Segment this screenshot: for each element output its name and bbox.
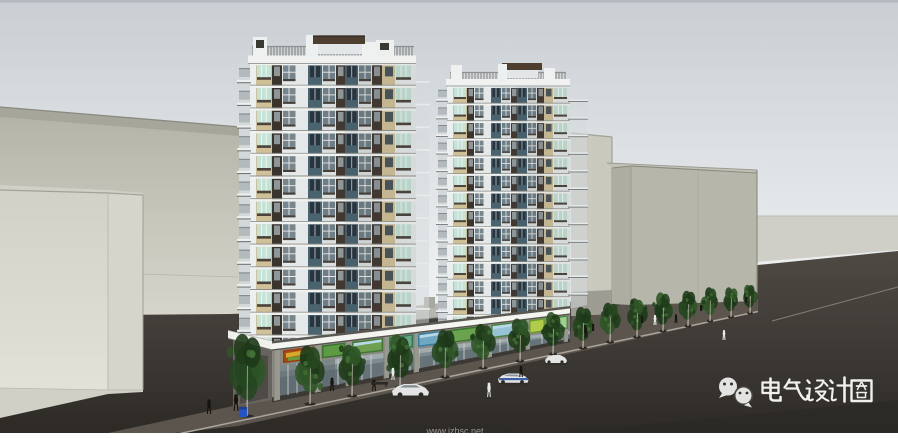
svg-text:www.jzhsc.net: www.jzhsc.net	[425, 426, 484, 433]
